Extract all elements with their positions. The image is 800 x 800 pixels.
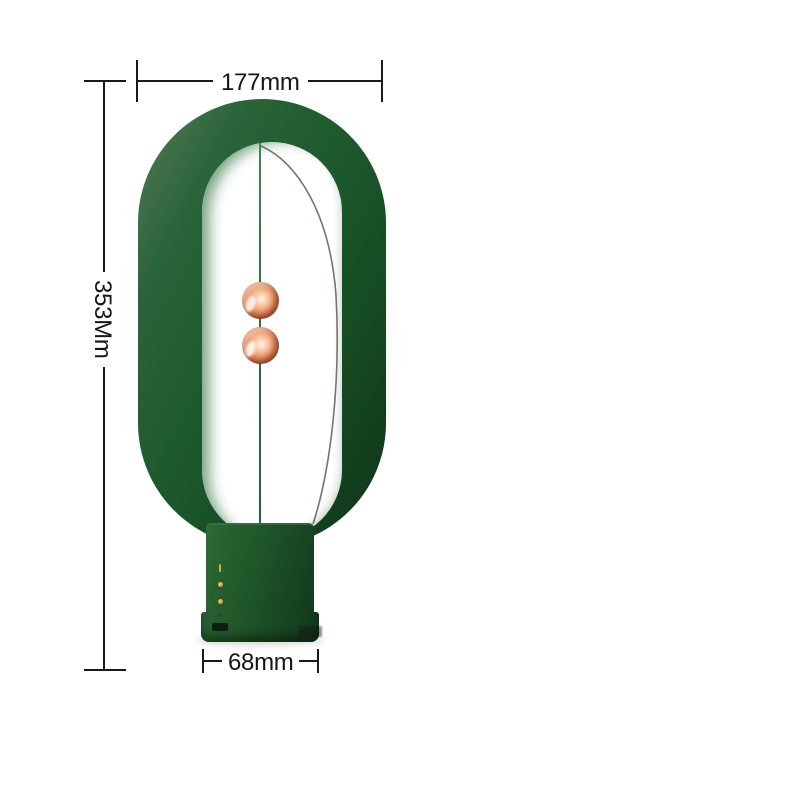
reflection-line <box>0 0 800 800</box>
lamp-base <box>206 523 314 621</box>
product-dimension-image: 177mm 353Mm 68mm <box>0 0 800 800</box>
dimension-width-label: 177mm <box>213 69 308 97</box>
dimension-height-tick-bottom <box>84 669 126 671</box>
dimension-base-tick-left <box>202 649 204 673</box>
dimension-base-label: 68mm <box>222 649 299 677</box>
magnetic-ball-bottom <box>242 327 279 364</box>
dimension-width-tick-right <box>381 60 383 102</box>
power-indicator-icon <box>219 564 221 572</box>
usb-port <box>212 623 228 631</box>
dimension-base-tick-right <box>317 649 319 673</box>
led-indicator-icon <box>218 582 223 587</box>
led-indicator-icon <box>218 599 223 604</box>
brand-mark <box>298 626 322 637</box>
magnetic-ball-top <box>242 282 279 319</box>
dimension-height-line <box>103 81 105 671</box>
dimension-height-label: 353Mm <box>87 272 117 367</box>
dimension-height-tick-top <box>84 80 126 82</box>
small-indicator-dot <box>219 614 221 617</box>
dimension-width-tick-left <box>136 60 138 102</box>
